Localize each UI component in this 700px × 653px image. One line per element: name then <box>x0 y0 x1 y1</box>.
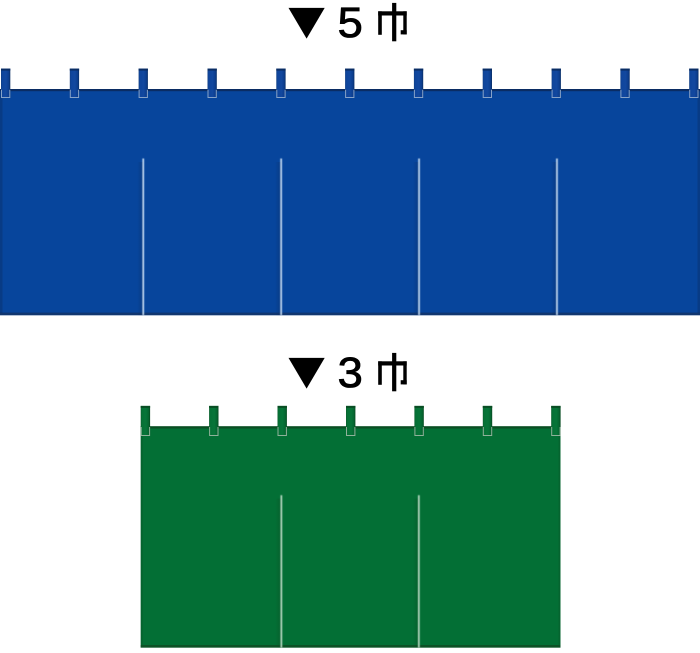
svg-text:5: 5 <box>338 0 363 47</box>
svg-text:3: 3 <box>338 350 363 397</box>
